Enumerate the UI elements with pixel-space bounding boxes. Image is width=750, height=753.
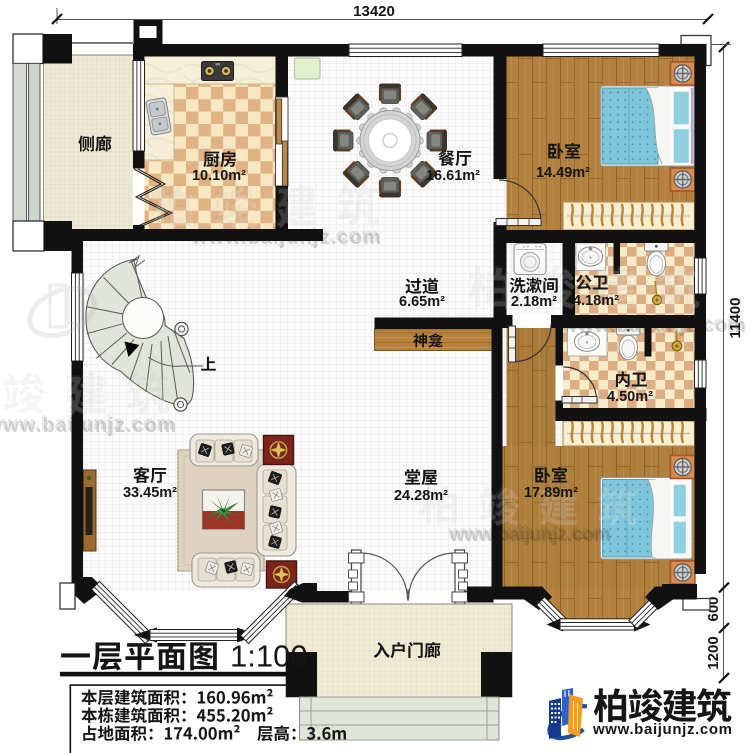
svg-text:www.baijunjz.com: www.baijunjz.com — [592, 721, 732, 738]
svg-text:24.28m²: 24.28m² — [394, 488, 448, 504]
svg-text:10.10m²: 10.10m² — [192, 168, 246, 184]
svg-text:2.18m²: 2.18m² — [511, 294, 557, 310]
svg-text:14.49m²: 14.49m² — [536, 165, 590, 181]
svg-text:www.baijunjz.com: www.baijunjz.com — [0, 413, 175, 435]
svg-text:16.61m²: 16.61m² — [426, 168, 480, 184]
svg-text:4.50m²: 4.50m² — [607, 389, 653, 405]
svg-text:17.89m²: 17.89m² — [524, 485, 578, 501]
svg-text:www.baijunjz.com: www.baijunjz.com — [189, 225, 380, 247]
svg-text:www.baijunjz.com: www.baijunjz.com — [559, 313, 745, 335]
svg-text:4.18m²: 4.18m² — [573, 293, 619, 309]
svg-text:33.45m²: 33.45m² — [123, 485, 177, 501]
svg-text:1:100: 1:100 — [230, 639, 308, 674]
svg-text:13420: 13420 — [353, 3, 395, 20]
svg-text:www.baijunjz.com: www.baijunjz.com — [447, 523, 610, 544]
svg-text:1200: 1200 — [705, 636, 722, 669]
svg-text:6.65m²: 6.65m² — [399, 294, 445, 310]
